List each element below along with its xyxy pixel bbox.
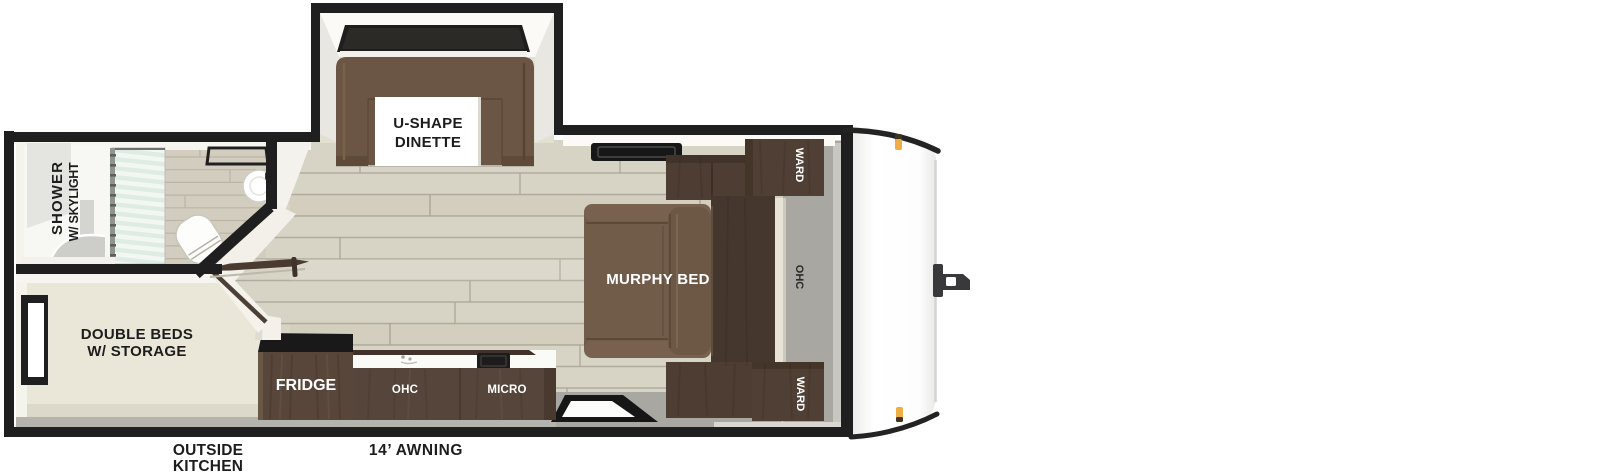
svg-text:U-SHAPE: U-SHAPE	[393, 115, 463, 132]
svg-text:WARD: WARD	[793, 148, 805, 183]
svg-text:OHC: OHC	[392, 384, 418, 396]
svg-text:W/ SKYLIGHT: W/ SKYLIGHT	[67, 162, 81, 241]
svg-text:OHC: OHC	[793, 265, 805, 290]
svg-text:MICRO: MICRO	[487, 384, 526, 396]
svg-text:14’ AWNING: 14’ AWNING	[369, 442, 463, 459]
svg-text:W/ STORAGE: W/ STORAGE	[87, 343, 186, 360]
svg-text:FRIDGE: FRIDGE	[276, 377, 337, 394]
svg-text:DINETTE: DINETTE	[395, 134, 461, 151]
svg-text:MURPHY BED: MURPHY BED	[606, 271, 710, 288]
svg-text:SHOWER: SHOWER	[49, 161, 66, 235]
svg-text:DOUBLE BEDS: DOUBLE BEDS	[81, 326, 193, 343]
svg-text:OUTSIDE: OUTSIDE	[173, 442, 243, 459]
svg-text:KITCHEN: KITCHEN	[173, 458, 243, 472]
svg-text:WARD: WARD	[794, 377, 806, 412]
